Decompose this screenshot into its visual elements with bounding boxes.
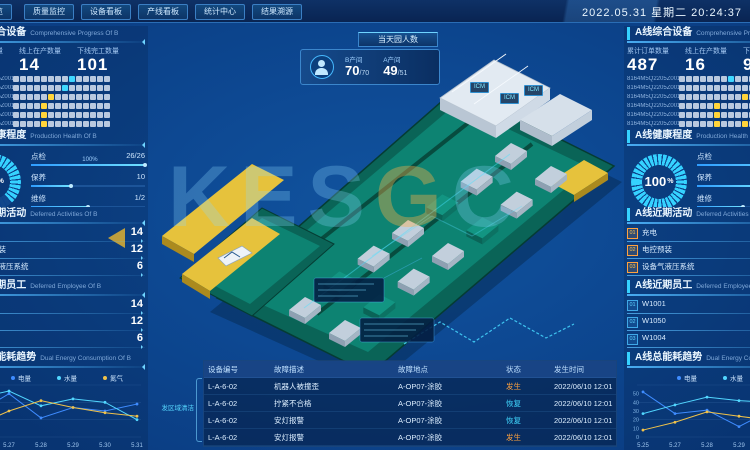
main-nav: 质量监控设备看板产线看板统计中心结果溯源 [24, 4, 309, 20]
grid-cell[interactable] [41, 112, 47, 118]
item-label: 电控预装 [0, 245, 6, 254]
grid-cell[interactable] [707, 94, 713, 100]
grid-cell[interactable] [69, 121, 75, 127]
legend-label: 水量 [64, 374, 78, 383]
legend-dot [677, 376, 681, 380]
grid-cell[interactable] [700, 103, 706, 109]
grid-cell[interactable] [13, 76, 19, 82]
list-item[interactable]: 03W1004 [627, 333, 750, 350]
grid-cell[interactable] [693, 103, 699, 109]
metric-label: 点检 [31, 151, 46, 162]
activity-list: 01充电1402电控预装1203设备气液压系统6 [0, 227, 145, 278]
order-id: 8164M5Q2205Z0010 [0, 76, 13, 82]
item-arrow-line [627, 330, 750, 331]
grid-cell[interactable] [728, 94, 734, 100]
grid-cell[interactable] [728, 103, 734, 109]
grid-cell[interactable] [679, 85, 685, 91]
panel-title-text: B线总能耗趋势 [0, 352, 36, 363]
grid-cell[interactable] [13, 121, 19, 127]
grid-cell[interactable] [27, 94, 33, 100]
grid-cell[interactable] [62, 76, 68, 82]
grid-cell[interactable] [83, 94, 89, 100]
grid-cell[interactable] [721, 103, 727, 109]
cell-desc: 机器人被撞歪 [270, 381, 394, 392]
chart-point [674, 421, 677, 424]
grid-cell[interactable] [69, 112, 75, 118]
grid-cell[interactable] [707, 103, 713, 109]
order-grid-row: 8164M5Q2205Z0015 [627, 119, 750, 128]
metric-track [31, 185, 145, 187]
item-arrow-line [627, 347, 750, 348]
grid-cell[interactable] [20, 94, 26, 100]
grid-cell[interactable] [679, 76, 685, 82]
chart-point [8, 390, 11, 393]
top-bar: 览 质量监控设备看板产线看板统计中心结果溯源 2022.05.31 星期二 20… [0, 0, 750, 23]
table-row[interactable]: L-A-6-02拧紧不合格A-OP07-涂胶恢复2022/06/10 12:01 [204, 395, 616, 412]
dashboard-root: 览 质量监控设备看板产线看板统计中心结果溯源 2022.05.31 星期二 20… [0, 0, 750, 450]
metric-label: 维修 [697, 193, 712, 204]
grid-cell[interactable] [83, 103, 89, 109]
grid-cell[interactable] [34, 121, 40, 127]
grid-cell[interactable] [76, 76, 82, 82]
grid-cell[interactable] [686, 94, 692, 100]
item-arrow-line [0, 258, 145, 259]
grid-cell[interactable] [90, 76, 96, 82]
list-item[interactable]: 03设备气液压系统 [627, 261, 750, 278]
grid-cell[interactable] [62, 121, 68, 127]
panel-subtitle: Deferred Employee Of A [696, 283, 750, 290]
cell-desc: 安灯报警 [270, 432, 394, 443]
grid-cell[interactable] [83, 121, 89, 127]
grid-cell[interactable] [686, 112, 692, 118]
grid-cell[interactable] [714, 85, 720, 91]
panel-title: B线健康程度Production Health Of B [0, 130, 145, 143]
grid-cell[interactable] [69, 103, 75, 109]
grid-cell[interactable] [83, 112, 89, 118]
scene-tag[interactable]: ICM [524, 85, 543, 96]
grid-cell[interactable] [679, 121, 685, 127]
item-arrow-line [0, 241, 145, 242]
grid-cell[interactable] [69, 85, 75, 91]
item-label: 充电 [642, 228, 657, 237]
grid-cell[interactable] [721, 85, 727, 91]
grid-cell[interactable] [90, 94, 96, 100]
metric-value: 1/2 [135, 193, 145, 204]
nav-item-4[interactable]: 结果溯源 [252, 4, 302, 20]
title-underline [627, 144, 750, 146]
item-index-chip: 02 [627, 245, 638, 256]
grid-cell[interactable] [55, 112, 61, 118]
list-item[interactable]: 01W100114 [0, 299, 145, 316]
metric-fill [697, 185, 750, 187]
grid-cell[interactable] [693, 121, 699, 127]
grid-cell[interactable] [700, 112, 706, 118]
panel-title: A线近期员工Deferred Employee Of A [627, 280, 750, 293]
gauge-unit: % [667, 178, 673, 185]
panel-title: A线总能耗趋势Dual Energy Consumption Of A [627, 352, 750, 365]
chart-xtick: 5.28 [701, 443, 713, 449]
grid-cell[interactable] [62, 103, 68, 109]
grid-cell[interactable] [41, 103, 47, 109]
column-header: 故障地点 [394, 364, 502, 375]
item-arrow-line [627, 313, 750, 314]
cell-status: 发生 [502, 381, 550, 392]
order-grid-row: 8164M5Q2205Z0014 [0, 110, 145, 119]
title-underline [627, 41, 750, 43]
grid-cell[interactable] [76, 112, 82, 118]
nav-item-0[interactable]: 质量监控 [24, 4, 74, 20]
legend-dot [103, 376, 107, 380]
panel-title: A线综合设备Comprehensive Progress Of A [627, 27, 750, 40]
grid-cell[interactable] [104, 121, 110, 127]
panel-title: A线健康程度Production Health Of A [627, 130, 750, 143]
chart-point [642, 429, 645, 432]
panel-activities-a: A线近期活动Deferred Activities Of A 01充电02电控预… [624, 207, 750, 279]
panel-health-a: A线健康程度Production Health Of A 100% 点检保养维修 [624, 129, 750, 207]
grid-cell[interactable] [742, 76, 748, 82]
chart-point [8, 392, 11, 395]
grid-cell[interactable] [742, 112, 748, 118]
grid-cell[interactable] [41, 76, 47, 82]
order-id: 8164M5Q2205Z0012 [0, 94, 13, 100]
chart-point [8, 410, 11, 413]
progress-stats: 累计订单数量8线上在产数量14下线完工数量101 [0, 46, 145, 72]
grid-cell[interactable] [104, 85, 110, 91]
metric-track [31, 164, 145, 166]
order-grid-row: 8164M5Q2205Z0012 [627, 92, 750, 101]
grid-cell[interactable] [34, 94, 40, 100]
order-id: 8164M5Q2205Z0010 [627, 76, 679, 82]
chart-point [738, 399, 741, 402]
grid-cell[interactable] [742, 94, 748, 100]
grid-cell[interactable] [700, 94, 706, 100]
order-id: 8164M5Q2205Z0013 [0, 103, 13, 109]
panel-employees-a: A线近期员工Deferred Employee Of A 01W100102W1… [624, 279, 750, 351]
panel-employees-b: B线近期员工Deferred Employee Of B 01W10011402… [0, 279, 148, 351]
grid-cell[interactable] [742, 121, 748, 127]
grid-cell[interactable] [721, 76, 727, 82]
grid-cell[interactable] [700, 76, 706, 82]
grid-cell[interactable] [679, 94, 685, 100]
panel-title-text: A线总能耗趋势 [635, 352, 702, 363]
chart-ytick: 10 [633, 426, 639, 432]
panel-subtitle: Production Health Of B [30, 133, 96, 140]
order-id: 8164M5Q2205Z0015 [627, 121, 679, 127]
factory-3d-scene[interactable]: ICMICMICM [122, 46, 627, 364]
order-id: 8164M5Q2205Z0015 [0, 121, 13, 127]
grid-cell[interactable] [97, 112, 103, 118]
grid-cell[interactable] [55, 121, 61, 127]
grid-cell[interactable] [76, 121, 82, 127]
grid-cell[interactable] [20, 85, 26, 91]
order-grid-row: 8164M5Q2205Z0010 [0, 74, 145, 83]
grid-cell[interactable] [20, 76, 26, 82]
grid-cell[interactable] [679, 103, 685, 109]
health-metric-0: 点检 [697, 151, 750, 166]
grid-cell[interactable] [90, 85, 96, 91]
grid-cell[interactable] [686, 103, 692, 109]
panel-title-text: B线综合设备 [0, 27, 26, 38]
grid-cell[interactable] [41, 94, 47, 100]
list-item[interactable]: 01W1001 [627, 299, 750, 316]
grid-cell[interactable] [693, 85, 699, 91]
grid-cell[interactable] [714, 112, 720, 118]
people-counter-tab[interactable]: 当天园人数 [358, 32, 438, 47]
panel-title: B线总能耗趋势Dual Energy Consumption Of B [0, 352, 145, 365]
grid-cell[interactable] [735, 76, 741, 82]
item-arrow-line [627, 275, 750, 276]
legend-label: 氮气 [110, 374, 124, 383]
grid-cell[interactable] [707, 85, 713, 91]
grid-cell[interactable] [55, 103, 61, 109]
item-value: 14 [131, 298, 143, 310]
grid-cell[interactable] [62, 112, 68, 118]
grid-cell[interactable] [34, 76, 40, 82]
grid-cell[interactable] [104, 112, 110, 118]
grid-cell[interactable] [728, 76, 734, 82]
grid-cell[interactable] [714, 94, 720, 100]
item-value: 14 [131, 226, 143, 238]
grid-cell[interactable] [700, 121, 706, 127]
grid-cell[interactable] [707, 121, 713, 127]
grid-cell[interactable] [34, 103, 40, 109]
grid-cell[interactable] [742, 103, 748, 109]
column-header: 设备编号 [204, 364, 270, 375]
order-grid-row: 8164M5Q2205Z0014 [627, 110, 750, 119]
cell-id: L-A-6-02 [204, 399, 270, 408]
grid-cell[interactable] [742, 85, 748, 91]
chart-xtick: 5.27 [3, 443, 15, 449]
panel-title-text: A线综合设备 [635, 27, 692, 38]
grid-cell[interactable] [76, 103, 82, 109]
grid-cell[interactable] [48, 85, 54, 91]
grid-cell[interactable] [13, 112, 19, 118]
panel-title-text: A线近期活动 [635, 208, 692, 219]
grid-cell[interactable] [55, 85, 61, 91]
grid-cell[interactable] [13, 85, 19, 91]
grid-cell[interactable] [48, 112, 54, 118]
grid-cell[interactable] [714, 121, 720, 127]
cell-time: 2022/06/10 12:01 [550, 433, 644, 442]
grid-cell[interactable] [69, 94, 75, 100]
order-id: 8164M5Q2205Z0013 [627, 103, 679, 109]
order-grid-row: 8164M5Q2205Z0013 [627, 101, 750, 110]
scene-tag[interactable]: ICM [500, 93, 519, 104]
grid-cell[interactable] [686, 121, 692, 127]
grid-cell[interactable] [90, 103, 96, 109]
grid-cell[interactable] [83, 85, 89, 91]
grid-cell[interactable] [97, 121, 103, 127]
grid-cell[interactable] [13, 103, 19, 109]
activity-list: 01充电02电控预装03设备气液压系统 [627, 227, 750, 278]
chart-point [706, 396, 709, 399]
grid-cell[interactable] [679, 112, 685, 118]
grid-cell[interactable] [90, 121, 96, 127]
scene-tag[interactable]: ICM [470, 82, 489, 93]
grid-cell[interactable] [48, 94, 54, 100]
grid-cell[interactable] [97, 76, 103, 82]
grid-cell[interactable] [728, 112, 734, 118]
health-metrics: 点检保养维修 [697, 149, 750, 207]
grid-cell[interactable] [41, 85, 47, 91]
factory-3d-canvas [122, 46, 627, 364]
list-item[interactable]: 03W10046 [0, 333, 145, 350]
table-row[interactable]: L-A-6-02安灯报警A-OP07-涂胶恢复2022/06/10 12:01 [204, 412, 616, 429]
list-item[interactable]: 01充电 [627, 227, 750, 244]
people-counter-box: B产间70/70A产间49/51 [300, 49, 440, 85]
grid-cell[interactable] [55, 94, 61, 100]
nav-item-2[interactable]: 产线看板 [138, 4, 188, 20]
grid-cell[interactable] [13, 94, 19, 100]
panel-subtitle: Comprehensive Progress Of B [30, 30, 118, 37]
grid-cell[interactable] [104, 103, 110, 109]
people-group-value: 49/51 [383, 64, 407, 81]
cell-id: L-A-6-02 [204, 433, 270, 442]
grid-cell[interactable] [721, 94, 727, 100]
grid-cell[interactable] [27, 76, 33, 82]
nav-item-3[interactable]: 统计中心 [195, 4, 245, 20]
metric-value: 10 [137, 172, 145, 183]
grid-cell[interactable] [735, 112, 741, 118]
grid-cell[interactable] [27, 112, 33, 118]
item-value: 6 [137, 332, 143, 344]
list-item[interactable]: 02W1050 [627, 316, 750, 333]
grid-cell[interactable] [20, 121, 26, 127]
nav-item-cut[interactable]: 览 [0, 4, 12, 20]
stat-value: 8 [0, 56, 3, 73]
metric-label: 点检 [697, 151, 712, 162]
grid-cell[interactable] [104, 76, 110, 82]
grid-cell[interactable] [20, 112, 26, 118]
grid-cell[interactable] [735, 121, 741, 127]
legend-label: 电量 [684, 374, 698, 383]
metric-top: 保养 [697, 172, 750, 183]
order-grid-row: 8164M5Q2205Z0011 [0, 83, 145, 92]
chart-xtick: 5.29 [733, 443, 745, 449]
metric-value: 26/26 [126, 151, 145, 162]
grid-cell[interactable] [34, 112, 40, 118]
progress-stat-0: 累计订单数量8 [0, 46, 3, 72]
panel-progress-b: B线综合设备Comprehensive Progress Of B 累计订单数量… [0, 26, 148, 129]
grid-cell[interactable] [707, 76, 713, 82]
item-label: W1001 [642, 299, 666, 308]
grid-cell[interactable] [735, 85, 741, 91]
list-item[interactable]: 02电控预装12 [0, 244, 145, 261]
grid-cell[interactable] [97, 85, 103, 91]
grid-cell[interactable] [27, 121, 33, 127]
health-metric-1: 保养10 [31, 172, 145, 187]
grid-cell[interactable] [48, 103, 54, 109]
grid-cell[interactable] [62, 85, 68, 91]
grid-cell[interactable] [55, 76, 61, 82]
health-metrics: 点检26/26100%保养10维修1/2 [31, 149, 145, 207]
chart-point [72, 397, 75, 400]
grid-cell[interactable] [20, 103, 26, 109]
list-item[interactable]: 01充电14 [0, 227, 145, 244]
cell-desc: 拧紧不合格 [270, 398, 394, 409]
metric-top: 维修1/2 [31, 193, 145, 204]
grid-cell[interactable] [693, 112, 699, 118]
order-grid-row: 8164M5Q2205Z0010 [627, 74, 750, 83]
grid-cell[interactable] [27, 103, 33, 109]
grid-cell[interactable] [27, 85, 33, 91]
grid-cell[interactable] [728, 85, 734, 91]
grid-cell[interactable] [41, 121, 47, 127]
grid-cell[interactable] [700, 85, 706, 91]
grid-cell[interactable] [62, 94, 68, 100]
panel-title-text: B线近期活动 [0, 208, 26, 219]
energy-chart-a: 504030201005.255.275.285.295.305.31电量水量氮… [627, 371, 750, 450]
grid-cell[interactable] [69, 76, 75, 82]
nav-item-1[interactable]: 设备看板 [81, 4, 131, 20]
metric-fill [31, 164, 145, 166]
grid-cell[interactable] [721, 121, 727, 127]
grid-cell[interactable] [707, 112, 713, 118]
list-item[interactable]: 03设备气液压系统6 [0, 261, 145, 278]
grid-cell[interactable] [735, 94, 741, 100]
list-item[interactable]: 02电控预装 [627, 244, 750, 261]
grid-cell[interactable] [97, 94, 103, 100]
cell-status: 发生 [502, 432, 550, 443]
grid-cell[interactable] [48, 121, 54, 127]
order-grid: 8164M5Q2205Z00108164M5Q2205Z00118164M5Q2… [627, 74, 750, 128]
health-gauge: 63% [0, 154, 21, 208]
panel-title: B线近期员工Deferred Employee Of B [0, 280, 145, 293]
item-label: 设备气液压系统 [642, 262, 695, 271]
chart-point [136, 415, 139, 418]
grid-cell[interactable] [686, 85, 692, 91]
grid-cell[interactable] [686, 76, 692, 82]
health-gauge: 100% [631, 154, 687, 208]
grid-cell[interactable] [728, 121, 734, 127]
grid-cell[interactable] [76, 94, 82, 100]
grid-cell[interactable] [97, 103, 103, 109]
people-groups: B产间70/70A产间49/51 [345, 54, 407, 81]
order-id: 8164M5Q2205Z0014 [627, 112, 679, 118]
grid-cell[interactable] [714, 103, 720, 109]
grid-cell[interactable] [104, 94, 110, 100]
order-grid: 8164M5Q2205Z00108164M5Q2205Z00118164M5Q2… [0, 74, 145, 128]
grid-cell[interactable] [693, 76, 699, 82]
grid-cell[interactable] [90, 112, 96, 118]
item-index-chip: 01 [627, 228, 638, 239]
panel-subtitle: Comprehensive Progress Of A [696, 30, 750, 37]
stat-label: 累计订单数量 [0, 46, 3, 56]
list-item[interactable]: 02W105012 [0, 316, 145, 333]
grid-cell[interactable] [34, 85, 40, 91]
chart-point [104, 411, 107, 414]
cell-loc: A-OP07-涂胶 [394, 398, 502, 409]
health-metric-1: 保养 [697, 172, 750, 187]
panel-activities-b: B线近期活动Deferred Activities Of B 01充电1402电… [0, 207, 148, 279]
panel-title-text: B线近期员工 [0, 280, 26, 291]
panel-title-text: B线健康程度 [0, 130, 26, 141]
table-row[interactable]: L-A-6-02安灯报警A-OP07-涂胶发生2022/06/10 12:01 [204, 429, 616, 446]
grid-cell[interactable] [721, 112, 727, 118]
grid-cell[interactable] [76, 85, 82, 91]
column-header: 状态 [502, 364, 550, 375]
grid-cell[interactable] [714, 76, 720, 82]
grid-cell[interactable] [735, 103, 741, 109]
chart-xtick: 5.29 [67, 443, 79, 449]
grid-cell[interactable] [693, 94, 699, 100]
grid-cell[interactable] [83, 76, 89, 82]
panel-subtitle: Deferred Activities Of A [696, 211, 750, 218]
table-row[interactable]: L-A-6-02机器人被撞歪A-OP07-涂胶发生2022/06/10 12:0… [204, 378, 616, 395]
panel-health-b: B线健康程度Production Health Of B 63% 点检26/26… [0, 129, 148, 207]
title-underline [0, 366, 145, 368]
grid-cell[interactable] [48, 76, 54, 82]
